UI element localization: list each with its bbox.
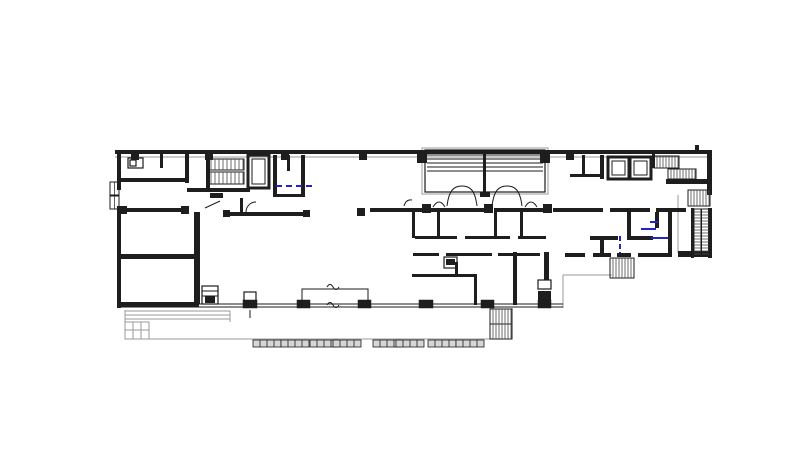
wall-segment	[544, 252, 549, 280]
walls-layer	[115, 145, 712, 308]
arcs-layer	[246, 186, 537, 308]
wall-segment	[413, 253, 439, 256]
wall-segment	[617, 253, 631, 257]
wall-segment	[121, 178, 187, 182]
wall-segment	[370, 208, 422, 212]
exterior-stair-south-east	[610, 258, 634, 278]
door-swing-arc	[404, 200, 412, 206]
colonnade-column-base	[481, 300, 494, 308]
wall-segment	[666, 179, 707, 184]
wall-segment	[627, 236, 653, 240]
elevator-cab	[252, 159, 265, 184]
stair-run-northwest-lower	[207, 172, 244, 184]
wall-segment	[600, 155, 604, 179]
wall-segment	[513, 252, 517, 305]
detail-line	[205, 201, 220, 208]
wall-segment	[465, 236, 510, 239]
column	[303, 210, 310, 217]
stair-run-northwest-upper	[207, 159, 244, 170]
blue-layer	[276, 186, 668, 253]
wall-segment	[430, 208, 486, 212]
stairs-layer	[207, 156, 710, 339]
wall-segment	[570, 174, 602, 177]
elevator-shaft-wall	[248, 155, 269, 188]
wall-segment	[115, 150, 712, 154]
colonnade-column-base	[358, 300, 371, 308]
fixture-outline	[538, 280, 551, 289]
fixture-outline	[244, 292, 256, 301]
wall-segment	[225, 212, 307, 216]
wall-segment	[117, 206, 121, 308]
stair-run-northwest-upper-outline	[207, 159, 244, 170]
column	[566, 152, 574, 160]
wall-segment	[446, 259, 455, 265]
elevator-shaft-wall	[608, 157, 629, 179]
wall-segment	[205, 296, 215, 303]
wall-segment	[301, 155, 305, 197]
wall-segment	[590, 236, 618, 240]
wall-segment	[160, 153, 163, 168]
elevator-shaft	[608, 157, 629, 179]
wall-segment	[627, 212, 631, 240]
column	[181, 206, 189, 214]
stair-run-northwest-lower-outline	[207, 172, 244, 184]
column	[281, 152, 289, 160]
colonnade-column-base	[538, 300, 551, 308]
colonnade-column-base	[297, 300, 310, 308]
wall-segment	[273, 155, 277, 197]
fixture-outline	[130, 160, 136, 166]
escalator-east	[694, 209, 709, 255]
wall-segment	[565, 253, 585, 257]
elevator-shaft	[248, 155, 269, 188]
wall-segment	[520, 212, 523, 236]
colonnade-column-base	[243, 300, 257, 308]
wall-segment	[582, 155, 585, 175]
column	[422, 204, 431, 213]
elevator-shaft	[630, 157, 651, 179]
wall-segment	[553, 208, 603, 212]
column	[223, 210, 230, 217]
elevator-cab	[634, 161, 647, 175]
outlines-layer	[128, 150, 551, 304]
colonnade-column-base	[419, 300, 433, 308]
column	[543, 204, 552, 213]
door-swing-arc	[492, 186, 522, 206]
pavers-layer	[253, 340, 484, 347]
wall-segment	[695, 145, 699, 151]
wall-segment	[593, 253, 611, 257]
column	[359, 152, 367, 160]
stair-run-northeast-mid	[668, 169, 696, 179]
gray-layer	[115, 148, 712, 339]
wall-segment	[655, 212, 659, 228]
wall-segment	[437, 212, 440, 236]
wall-segment	[498, 253, 540, 256]
paver-group	[428, 340, 456, 347]
wall-segment	[446, 253, 492, 256]
column	[131, 152, 139, 160]
wall-segment	[240, 198, 243, 212]
wall-segment	[412, 212, 415, 238]
wall-segment	[273, 194, 305, 197]
door-swing-arc	[246, 202, 256, 212]
wall-segment	[474, 277, 477, 305]
stair-run-northeast-upper	[654, 156, 679, 168]
drawing-sheet	[0, 0, 807, 456]
door-swing-arc	[447, 186, 477, 206]
wall-segment	[518, 236, 546, 239]
wall-segment	[494, 208, 546, 212]
wall-segment	[210, 193, 223, 198]
wall-segment	[707, 151, 712, 195]
wall-segment	[610, 208, 650, 212]
paver-group	[396, 340, 424, 347]
paver-group	[281, 340, 309, 347]
paver-group	[253, 340, 281, 347]
wall-segment	[638, 253, 671, 257]
wall-segment	[185, 153, 189, 183]
wall-segment	[480, 192, 490, 197]
wall-segment	[412, 274, 477, 277]
column	[357, 208, 365, 216]
wall-segment	[668, 208, 672, 257]
wall-segment	[415, 236, 457, 239]
wall-segment	[600, 240, 604, 253]
column	[119, 206, 127, 214]
stair-run-east	[688, 190, 710, 206]
wall-segment	[121, 208, 185, 212]
paver-group	[333, 340, 361, 347]
door-swing-arc	[433, 202, 445, 207]
wall-segment	[494, 212, 497, 238]
wall-segment	[483, 176, 486, 194]
elevator-shaft-wall	[630, 157, 651, 179]
elevator-cab	[612, 161, 625, 175]
door-swing-arc	[525, 202, 537, 207]
paver-group	[456, 340, 484, 347]
floor-plan-canvas	[0, 0, 807, 456]
wall-segment	[187, 188, 250, 192]
wall-segment	[121, 254, 196, 259]
